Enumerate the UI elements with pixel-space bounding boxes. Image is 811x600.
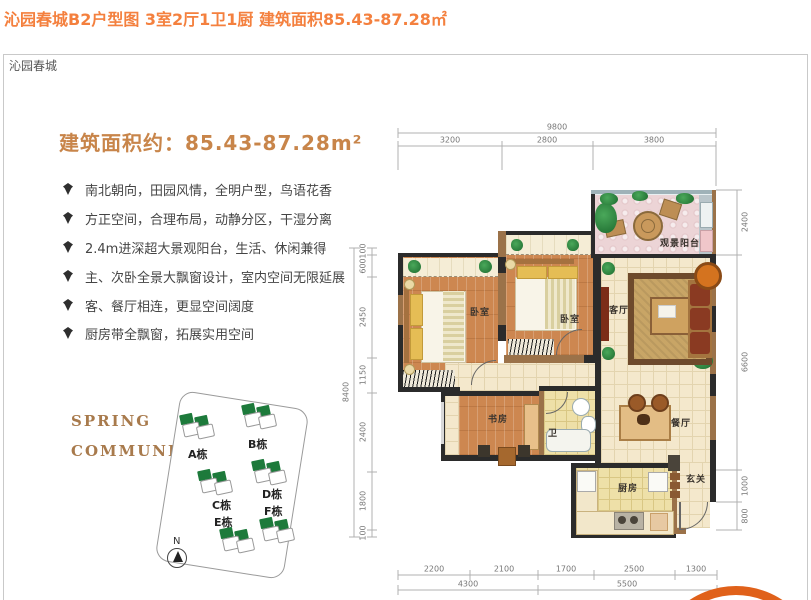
dimension-label: 600 bbox=[359, 258, 368, 273]
dimension-label: 4300 bbox=[458, 580, 478, 589]
dimension-label: 1000 bbox=[741, 476, 750, 496]
dimension-label: 2450 bbox=[359, 307, 368, 327]
dimension-lines bbox=[0, 0, 811, 600]
dimension-label: 9800 bbox=[547, 123, 567, 132]
dimension-label: 1300 bbox=[686, 565, 706, 574]
dimension-label: 3200 bbox=[440, 136, 460, 145]
dimension-label: 6600 bbox=[741, 352, 750, 372]
dimension-label: 1700 bbox=[556, 565, 576, 574]
floor-plan-page: 沁园春城B2户型图 3室2厅1卫1厨 建筑面积85.43-87.28㎡ 沁园春城… bbox=[0, 0, 811, 600]
dimension-label: 1800 bbox=[359, 491, 368, 511]
dimension-label: 2500 bbox=[624, 565, 644, 574]
dimension-label: 5500 bbox=[617, 580, 637, 589]
dimension-label: 3800 bbox=[644, 136, 664, 145]
dimension-label: 800 bbox=[741, 508, 750, 523]
dimension-label: 2200 bbox=[424, 565, 444, 574]
dimension-label: 1150 bbox=[359, 365, 368, 385]
dimension-label: 2400 bbox=[741, 212, 750, 232]
dimension-label: 8400 bbox=[342, 382, 351, 402]
dimension-label: 2100 bbox=[494, 565, 514, 574]
dimension-label: 2800 bbox=[537, 136, 557, 145]
dimension-label: 100 bbox=[359, 525, 368, 540]
dimension-label: 100 bbox=[359, 243, 368, 258]
dimension-label: 2400 bbox=[359, 422, 368, 442]
